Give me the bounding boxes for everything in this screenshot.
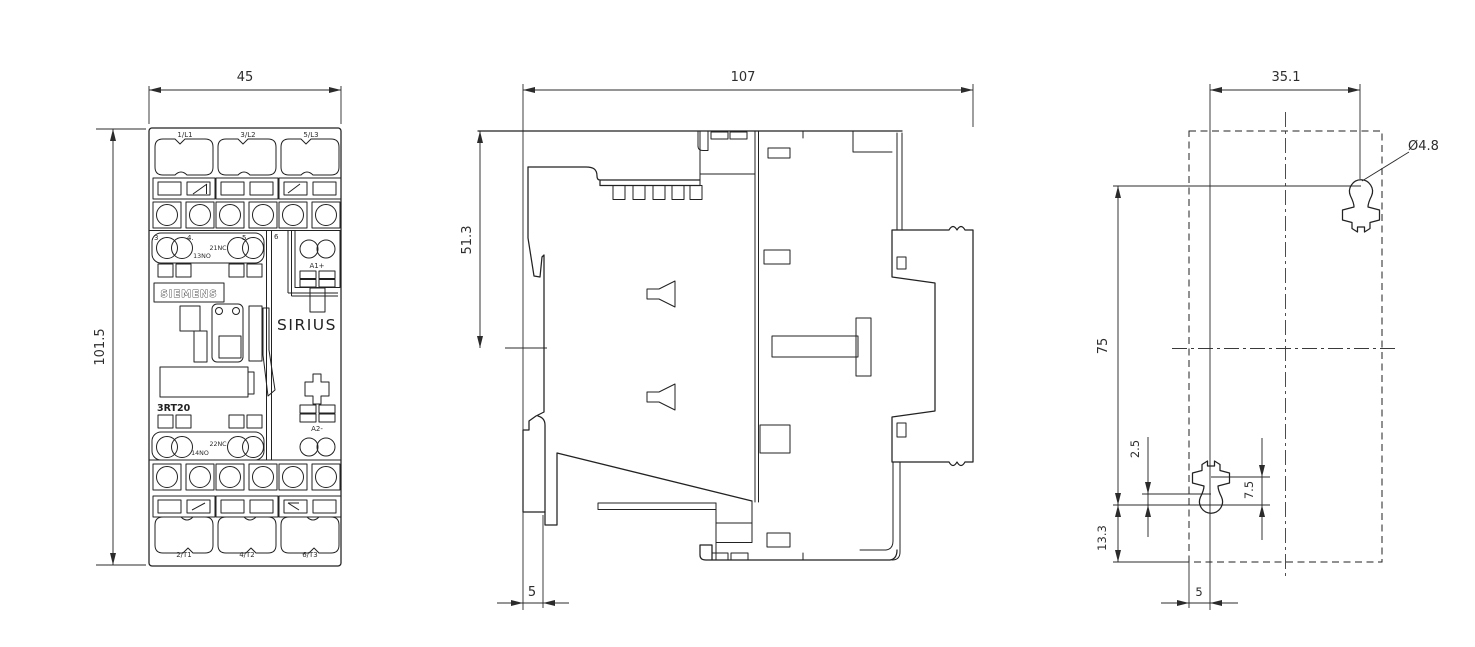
terminal-4t2-label: 4/T2 xyxy=(239,551,255,559)
keyhole-offset-label: 2.5 xyxy=(1128,440,1142,458)
no-lower-label: 14NO xyxy=(191,450,209,457)
coil-terminal-a1: A1+ xyxy=(288,231,340,313)
nc-lower-label: 22NC xyxy=(209,441,227,448)
drill-plan: 35.1 Ø4.8 75 2.5 7.5 13.3 5 xyxy=(1095,70,1439,610)
terminal-1l1-label: 1/L1 xyxy=(177,131,192,139)
side-view: 107 51.3 5 xyxy=(460,70,973,610)
bottom-edge-offset-label: 13.3 xyxy=(1095,525,1109,551)
coil-a2-label: A2- xyxy=(311,425,323,433)
aux-num-4: 4. xyxy=(187,234,194,242)
series-text: SIRIUS xyxy=(277,316,337,334)
coil-a1-label: A1+ xyxy=(309,262,324,270)
side-edge-offset-label: 5 xyxy=(1195,585,1202,599)
terminal-6t3-label: 6/T3 xyxy=(302,551,318,559)
brand-text: SIEMENS xyxy=(160,289,217,300)
side-depth-dim-label: 107 xyxy=(731,70,756,85)
drill-plan-dimensions: 35.1 Ø4.8 75 2.5 7.5 13.3 5 xyxy=(1095,70,1439,603)
terminal-5l3-label: 5/L3 xyxy=(303,131,318,139)
nc-upper-label: 21NC xyxy=(209,245,227,252)
terminal-3l2-label: 3/L2 xyxy=(240,131,255,139)
top-terminal-cavities xyxy=(153,139,341,228)
side-din-offset-dim-label: 5 xyxy=(528,585,536,600)
slot-height-label: 7.5 xyxy=(1242,481,1256,499)
front-height-dim-label: 101.5 xyxy=(93,328,108,365)
lower-aux-row: 3RT20 22NC 14NO xyxy=(152,403,264,460)
screwdriver-slot-marks xyxy=(647,281,675,410)
hole-diameter-label: Ø4.8 xyxy=(1408,139,1439,154)
upper-aux-row: 3 4. 5 6 21NC 13NO xyxy=(152,233,279,277)
test-handle xyxy=(772,318,871,376)
no-upper-label: 13NO xyxy=(193,253,211,260)
mounting-keyhole-top xyxy=(1343,180,1380,232)
front-view: 45 101.5 1/L1 3/L2 5/L3 3 4. 5 xyxy=(93,70,341,566)
front-width-dim-label: 45 xyxy=(237,70,254,85)
terminal-2t1-label: 2/T1 xyxy=(176,551,192,559)
front-view-body: 1/L1 3/L2 5/L3 3 4. 5 6 xyxy=(149,128,341,566)
side-upper-depth-dim-label: 51.3 xyxy=(460,226,475,255)
diameter-leader-line xyxy=(1362,152,1409,181)
contactor-dimension-drawing: 45 101.5 1/L1 3/L2 5/L3 3 4. 5 xyxy=(0,0,1475,647)
mechanism-detail xyxy=(160,304,275,397)
a2-cross-slot xyxy=(305,374,329,404)
side-profile xyxy=(478,131,973,560)
hole-spacing-v-label: 75 xyxy=(1096,338,1111,355)
bottom-terminal-cavities xyxy=(153,464,341,553)
rear-panel xyxy=(892,227,973,466)
aux-num-6: 6 xyxy=(274,233,279,241)
coil-terminal-a2: A2- xyxy=(300,405,335,456)
hole-spacing-h-label: 35.1 xyxy=(1272,70,1301,85)
model-text: 3RT20 xyxy=(157,403,191,414)
technical-drawing-page: 45 101.5 1/L1 3/L2 5/L3 3 4. 5 xyxy=(0,0,1475,647)
brand-logo: SIEMENS xyxy=(154,283,224,302)
